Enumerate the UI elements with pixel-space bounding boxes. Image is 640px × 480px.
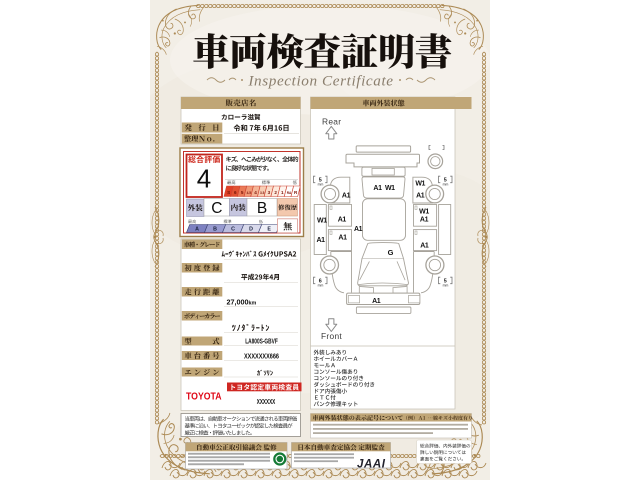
svg-text:C: C (231, 227, 235, 233)
svg-text:Inspection Certificate: Inspection Certificate (247, 73, 393, 90)
svg-text:A1: A1 (420, 243, 429, 250)
svg-text:A1: A1 (338, 235, 347, 242)
svg-text:W1: W1 (419, 209, 429, 216)
svg-text:4.5: 4.5 (247, 191, 252, 195)
svg-text:G: G (388, 248, 394, 257)
svg-text:XXXXXX: XXXXXX (257, 399, 276, 406)
svg-text:A1: A1 (420, 217, 429, 224)
svg-text:XXXXXXX666: XXXXXXX666 (244, 354, 279, 361)
svg-text:6: 6 (234, 190, 237, 195)
svg-text:A1: A1 (354, 226, 363, 233)
svg-text:A: A (195, 227, 199, 233)
svg-text:B: B (257, 200, 267, 217)
svg-text:2: 2 (274, 190, 277, 195)
svg-text:A1: A1 (416, 193, 425, 200)
svg-text:4: 4 (254, 190, 257, 195)
svg-text:W1: W1 (385, 185, 395, 192)
svg-text:A1: A1 (372, 298, 381, 305)
svg-text:E: E (267, 227, 271, 233)
svg-text:LA800S-GBVF: LA800S-GBVF (245, 339, 278, 346)
svg-text:JAAI: JAAI (357, 458, 386, 470)
svg-text:A1: A1 (342, 193, 351, 200)
svg-text:mm: mm (318, 182, 324, 186)
svg-text:W1: W1 (415, 181, 425, 188)
svg-text:mm: mm (318, 283, 324, 287)
svg-text:A1: A1 (317, 237, 326, 244)
svg-text:B: B (213, 227, 217, 233)
svg-text:S: S (227, 190, 230, 195)
svg-text:A1: A1 (373, 185, 382, 192)
svg-text:mm: mm (443, 283, 449, 287)
svg-text:TOYOTA: TOYOTA (186, 392, 222, 403)
svg-text:C: C (211, 200, 222, 217)
svg-text:3.5: 3.5 (260, 191, 265, 195)
svg-text:RA: RA (287, 191, 292, 195)
svg-text:mm: mm (443, 182, 449, 186)
svg-text:W1: W1 (317, 218, 327, 225)
svg-text:3: 3 (268, 190, 271, 195)
svg-text:D: D (249, 227, 253, 233)
svg-text:1: 1 (281, 190, 284, 195)
svg-text:A1: A1 (338, 217, 347, 224)
svg-text:4: 4 (197, 164, 211, 194)
svg-text:Rear: Rear (322, 117, 341, 127)
svg-text:5: 5 (241, 190, 244, 195)
svg-text:Front: Front (321, 331, 342, 341)
